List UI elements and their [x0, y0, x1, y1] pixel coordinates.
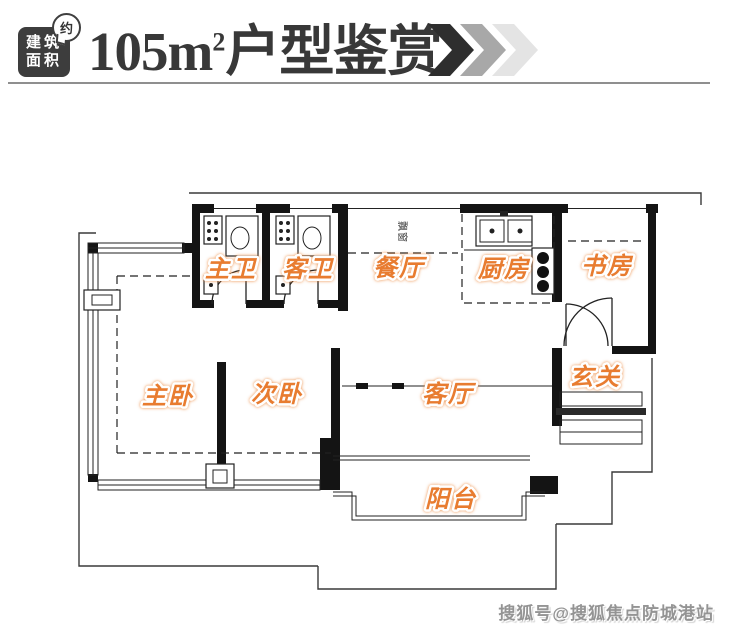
bottom-wall-box — [206, 464, 234, 488]
floorplan-page: 建筑 面积 约 105m2户型鉴赏 — [0, 0, 740, 634]
label-master-bedroom: 主卧 — [142, 383, 194, 410]
label-guest-bath: 客卫 — [282, 256, 335, 283]
label-balcony: 阳台 — [425, 486, 477, 513]
label-kitchen: 厨房 — [477, 256, 531, 283]
label-study: 书房 — [581, 253, 634, 280]
label-living-room: 客厅 — [422, 381, 477, 408]
label-foyer: 玄关 — [569, 364, 621, 391]
entry-door — [564, 298, 612, 346]
window-bands — [88, 243, 545, 520]
bay-window-label: 飘窗 — [396, 221, 409, 243]
watermark: 搜狐号@搜狐焦点防城港站 — [498, 599, 714, 624]
foyer-cabinets — [556, 392, 646, 444]
left-wall-box — [84, 290, 120, 310]
study-door — [566, 304, 608, 346]
label-dining-room: 餐厅 — [373, 255, 428, 282]
label-master-bath: 主卫 — [205, 256, 258, 283]
label-second-bedroom: 次卧 — [251, 381, 303, 408]
approx-bubble: 约 — [52, 13, 81, 42]
floorplan-drawing: 飘窗 主卫 客卫 餐厅 厨房 书房 主卧 次卧 客厅 玄关 阳台 — [0, 0, 740, 634]
